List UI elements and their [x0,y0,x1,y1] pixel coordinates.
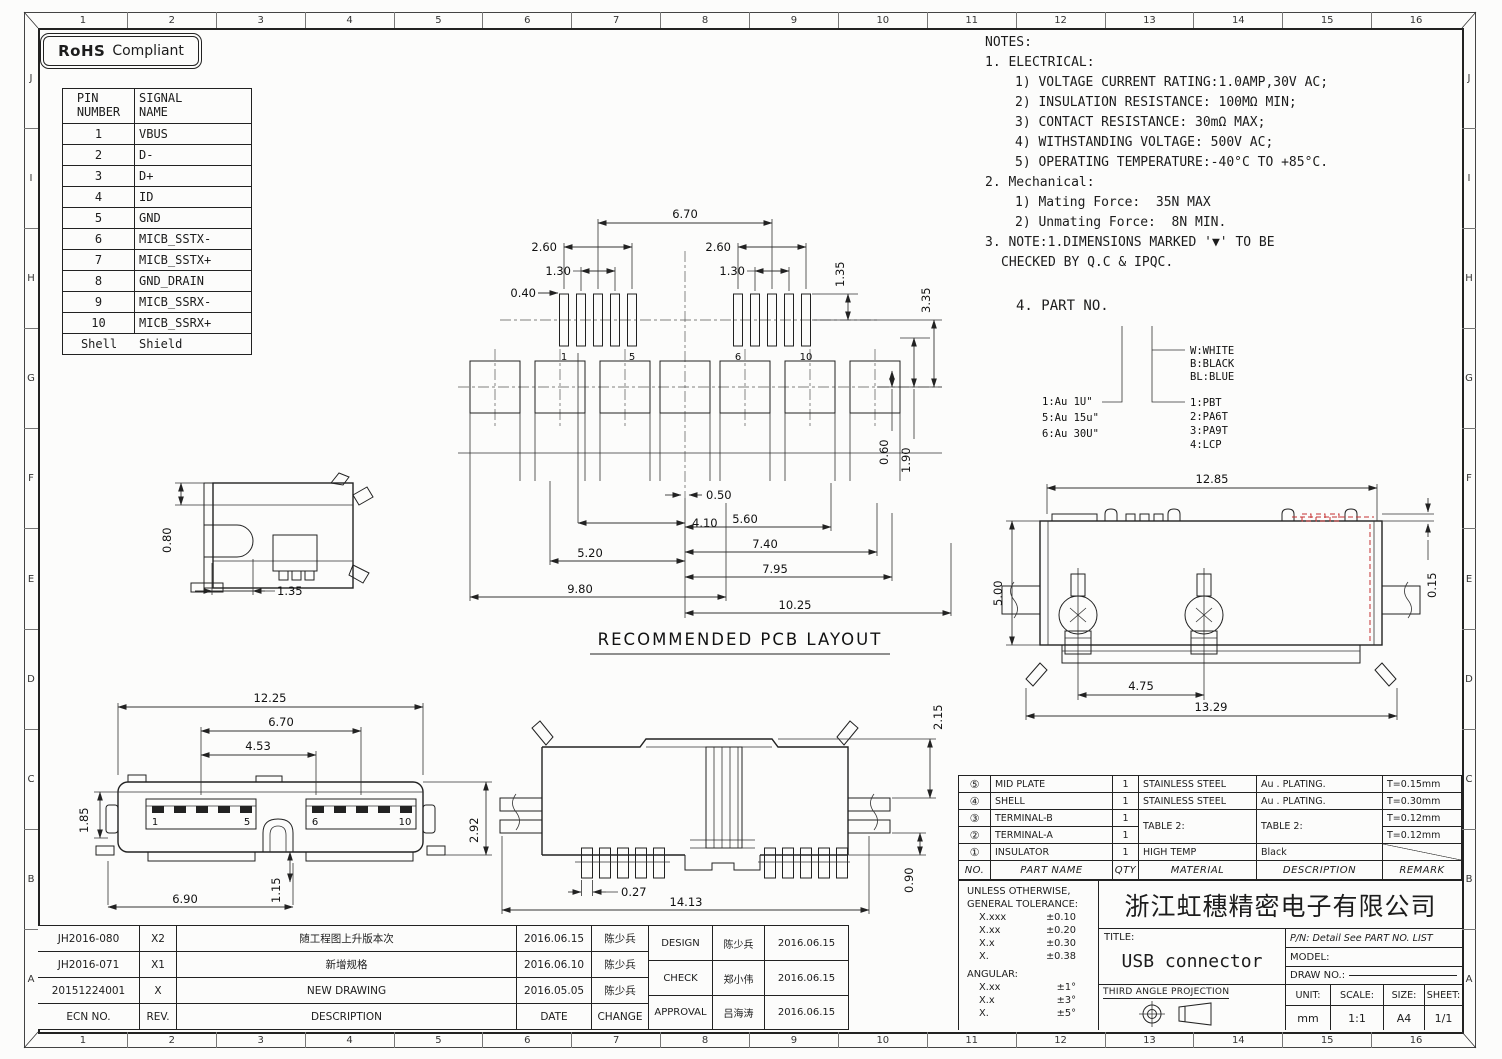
approval-date: 2016.06.15 [765,926,848,961]
plating-option: 1:Au 1U" [1042,396,1093,408]
rohs-bold-text: RoHS [58,42,105,60]
approval-role: DESIGN [649,926,713,961]
tol-val: ±0.20 [1046,924,1076,937]
bom-header: MATERIAL [1139,861,1257,879]
signal-cell: MICB_SSRX+ [135,313,251,334]
date-header: DATE [517,1004,592,1029]
bom-material: HIGH TEMP [1139,844,1257,861]
ruler-col: 12 [1017,12,1106,28]
ruler-row: F [24,429,38,529]
material-option: 3:PA9T [1190,425,1229,437]
material-option: 4:LCP [1190,439,1222,451]
dim-label: 0.80 [160,527,174,553]
tol-key: X. [979,950,989,963]
tolerance-line: UNLESS OTHERWISE, [967,885,1098,898]
tol-val: ±5° [1057,1007,1076,1020]
ruler-row: B [1462,830,1476,930]
contact-teeth [152,806,412,813]
bom-no: ⑤ [959,776,991,793]
note-line: 1) Mating Force: 35N MAX [985,193,1463,213]
dim-label: 6.70 [672,207,698,221]
bom-no: ① [959,844,991,861]
ruler-col: 13 [1106,12,1195,28]
pin-cell: 1 [63,124,135,145]
bom-header: NO. [959,861,991,879]
dim-label: 0.15 [1425,572,1439,598]
ruler-row: J [24,29,38,129]
approval-role: CHECK [649,961,713,996]
dim-label: 14.13 [670,895,703,909]
pin-cell: 8 [63,271,135,292]
ruler-col: 7 [572,1032,661,1048]
signal-cell: D- [135,145,251,166]
ruler-row: G [24,329,38,429]
notes-block: NOTES: 1. ELECTRICAL: 1) VOLTAGE CURRENT… [985,33,1463,273]
dim-label: 4.53 [245,739,271,753]
tol-val: ±0.10 [1046,911,1076,924]
approval-name: 郑小伟 [713,961,765,996]
bom-header: REMARK [1383,861,1461,879]
ruler-col: 1 [39,1032,128,1048]
ruler-col: 6 [483,12,572,28]
plating-option: 5:Au 15u" [1042,412,1099,424]
ruler-row: A [1462,930,1476,1029]
bom-header: DESCRIPTION [1257,861,1383,879]
drawing-title: USB connector [1099,951,1285,972]
bom-part-name: TERMINAL-A [991,827,1113,844]
ruler-col: 4 [306,1032,395,1048]
title-cell: TITLE: USB connector [1099,929,1286,984]
drawing-sheet: 1 2 3 4 5 6 7 8 9 10 11 12 13 14 15 16 1… [0,0,1502,1059]
approval-name: 陈少兵 [713,926,765,961]
dim-label: 6.90 [172,892,198,906]
bom-material-merged: TABLE 2: [1139,810,1257,844]
ruler-col: 3 [217,1032,306,1048]
dim-label: 1.15 [269,877,283,903]
front-view: 1 5 6 10 12.25 6.70 4.53 1.85 2.92 1.15 … [60,675,510,923]
ruler-row: B [24,830,38,930]
signal-cell: GND_DRAIN [135,271,251,292]
dim-label: 0.60 [877,439,891,465]
bom-qty: 1 [1113,844,1139,861]
pin-number: 6 [312,817,318,828]
ruler-top: 1 2 3 4 5 6 7 8 9 10 11 12 13 14 15 16 [39,12,1460,28]
bom-no: ③ [959,810,991,827]
tol-key: X.x [979,994,995,1007]
dim-label: 9.80 [567,582,593,596]
rev-header: REV. [140,1004,177,1029]
dim-label: 5.00 [991,580,1005,606]
dim-label: 5.60 [732,512,758,526]
ecn-no: 20151224001 [38,978,140,1004]
bom-qty: 1 [1113,776,1139,793]
pcb-layout-title: RECOMMENDED PCB LAYOUT [598,630,883,649]
signal-header: SIGNALNAME [135,89,251,124]
rev-code: X [140,978,177,1004]
red-reference-lines [1292,488,1378,643]
side-view-dimensions: 0.80 1.35 [160,483,303,598]
approval-date: 2016.06.15 [765,996,848,1029]
scale-value: 1:1 [1331,1006,1384,1030]
sheet-label: SHEET: [1425,985,1462,1006]
tol-val: ±0.30 [1046,937,1076,950]
ruler-col: 9 [750,12,839,28]
dim-label: 12.85 [1196,472,1229,486]
dim-label: 2.15 [931,704,945,730]
draw-no-label: DRAW NO.: [1290,970,1345,981]
signal-cell: MICB_SSTX+ [135,250,251,271]
part-number-note: P/N: Detail See PART NO. LIST [1286,929,1462,948]
tol-key: X.xxx [979,911,1006,924]
ruler-col: 14 [1194,1032,1283,1048]
dim-label: 0.27 [621,885,647,899]
bom-part-name: MID PLATE [991,776,1113,793]
ecn-no: JH2016-080 [38,926,140,952]
tol-key: X.xx [979,924,1000,937]
change-header: CHANGE [592,1004,648,1029]
signal-cell: D+ [135,166,251,187]
unit-label: UNIT: [1286,985,1331,1006]
ruler-row: H [24,229,38,329]
scale-label: SCALE: [1331,985,1384,1006]
title-block: 浙江虹穗精密电子有限公司 TITLE: USB connector P/N: D… [1098,880,1462,1030]
note-line: 3. NOTE:1.DIMENSIONS MARKED '▼' TO BE [985,233,1463,253]
ruler-col: 10 [839,12,928,28]
signal-cell: VBUS [135,124,251,145]
rear-view-dimensions: 2.15 0.90 0.27 14.13 [502,704,945,914]
part-no-tree: 1:Au 1U" 5:Au 15u" 6:Au 30U" W:WHITE B:B… [1040,322,1270,474]
bom-qty: 1 [1113,827,1139,844]
ruler-col: 10 [839,1032,928,1048]
ruler-col: 14 [1194,12,1283,28]
projection-symbols [1139,1001,1239,1027]
front-view-body [96,775,445,861]
side-view: 0.80 1.35 [135,443,395,628]
bom-description: Black [1257,844,1383,861]
shell-cell: Shell [63,334,135,354]
pin-number: 1 [152,817,158,828]
ruler-col: 15 [1283,12,1372,28]
dim-label: 1.85 [77,807,91,833]
tol-key: X.xx [979,981,1000,994]
pin-cell: 9 [63,292,135,313]
ruler-row: C [24,730,38,830]
note-line: 5) OPERATING TEMPERATURE:-40°C TO +85°C. [985,153,1463,173]
revision-table: JH2016-080 X2 随工程图上升版本次 2016.06.15 陈少兵 J… [38,925,649,1030]
rev-description: 随工程图上升版本次 [177,926,517,952]
ruler-col: 9 [750,1032,839,1048]
dim-label: 1.90 [899,447,913,473]
angular-label: ANGULAR: [967,968,1098,981]
ruler-col: 12 [1017,1032,1106,1048]
pin-cell: 2 [63,145,135,166]
approval-date: 2016.06.15 [765,961,848,996]
tol-key: X. [979,1007,989,1020]
ruler-col: 7 [572,12,661,28]
color-option: B:BLACK [1190,358,1235,370]
unit-value: mm [1286,1006,1331,1030]
bom-material: STAINLESS STEEL [1139,793,1257,810]
signal-cell: MICB_SSRX- [135,292,251,313]
note-line: 2) Unmating Force: 8N MIN. [985,213,1463,233]
dim-label: 0.90 [902,867,916,893]
pcb-mount-pads [458,361,942,481]
dim-label: 4.10 [692,516,718,530]
tol-val: ±0.38 [1046,950,1076,963]
bom-remark-slash [1383,844,1461,861]
dim-label: 10.25 [779,598,812,612]
top-view-body [1002,488,1420,700]
cone-symbol-icon [1179,1003,1211,1025]
sheet-value: 1/1 [1425,1006,1462,1030]
ruler-col: 11 [928,12,1017,28]
signal-cell: ID [135,187,251,208]
approval-name: 吕海涛 [713,996,765,1029]
bom-description-merged: TABLE 2: [1257,810,1383,844]
ruler-col: 4 [306,12,395,28]
ruler-col: 11 [928,1032,1017,1048]
rev-date: 2016.06.15 [517,926,592,952]
note-line: CHECKED BY Q.C & IPQC. [985,253,1463,273]
side-view-body [191,473,373,592]
ruler-col: 3 [217,12,306,28]
note-line: 2. Mechanical: [985,173,1463,193]
ruler-col: 16 [1372,1032,1460,1048]
ruler-row: I [1462,129,1476,229]
pin-number: 10 [399,817,412,828]
rev-change: 陈少兵 [592,978,648,1004]
size-label: SIZE: [1384,985,1425,1006]
tol-val: ±1° [1057,981,1076,994]
note-line: 4) WITHSTANDING VOLTAGE: 500V AC; [985,133,1463,153]
dim-label: 12.25 [254,691,287,705]
ruler-col: 5 [395,12,484,28]
pcb-layout-view: 1 5 6 10 6.70 2.60 1.30 0.40 2.60 [440,193,960,663]
dim-label: 1.30 [545,264,571,278]
dim-label: 1.30 [719,264,745,278]
rev-change: 陈少兵 [592,926,648,952]
material-option: 1:PBT [1190,397,1222,409]
rear-view-body [500,721,890,878]
bom-remark: T=0.15mm [1383,776,1461,793]
top-view-dimensions: 12.85 5.00 0.15 4.75 13.29 [991,472,1439,720]
ruler-row: I [24,129,38,229]
pin-cell: 5 [63,208,135,229]
rev-date: 2016.05.05 [517,978,592,1004]
ruler-row: A [24,930,38,1029]
bom-description: Au . PLATING. [1257,776,1383,793]
plating-option: 6:Au 30U" [1042,428,1099,440]
ruler-row: J [1462,29,1476,129]
projection-cell: THIRD ANGLE PROJECTION [1099,985,1286,1030]
dim-label: 1.35 [277,584,303,598]
ruler-bottom: 1 2 3 4 5 6 7 8 9 10 11 12 13 14 15 16 [39,1032,1460,1048]
pin-cell: 7 [63,250,135,271]
pin-signal-table: PINNUMBER SIGNALNAME 1VBUS 2D- 3D+ 4ID 5… [62,88,252,355]
bom-table: ⑤ MID PLATE 1 STAINLESS STEEL Au . PLATI… [958,775,1462,880]
bom-part-name: SHELL [991,793,1113,810]
dim-label: 2.60 [705,240,731,254]
color-option: BL:BLUE [1190,371,1234,383]
bom-remark: T=0.12mm [1383,827,1461,844]
front-view-dimensions: 12.25 6.70 4.53 1.85 2.92 1.15 6.90 [77,691,492,907]
note-line: NOTES: [985,33,1463,53]
note-line: 1. ELECTRICAL: [985,53,1463,73]
dim-label: 2.60 [531,240,557,254]
signal-cell: GND [135,208,251,229]
approval-role: APPROVAL [649,996,713,1029]
bom-header: PART NAME [991,861,1113,879]
description-header: DESCRIPTION [177,1004,517,1029]
note-line: 1) VOLTAGE CURRENT RATING:1.0AMP,30V AC; [985,73,1463,93]
dim-label: 1.35 [833,261,847,287]
dim-label: 13.29 [1195,700,1228,714]
note-line: 2) INSULATION RESISTANCE: 100MΩ MIN; [985,93,1463,113]
pin-number: 5 [244,817,250,828]
ruler-row: E [24,529,38,629]
ruler-col: 16 [1372,12,1460,28]
color-option: W:WHITE [1190,345,1234,357]
dim-label: 0.40 [510,286,536,300]
bom-part-name: TERMINAL-B [991,810,1113,827]
tol-key: X.x [979,937,995,950]
ruler-col: 6 [483,1032,572,1048]
company-name: 浙江虹穗精密电子有限公司 [1099,881,1462,929]
title-label: TITLE: [1104,932,1134,943]
rohs-compliant-text: Compliant [112,43,184,59]
part-no-heading: 4. PART NO. [1016,298,1109,314]
dim-label: 7.95 [762,562,788,576]
ruler-row: G [1462,329,1476,429]
dim-label: 4.75 [1128,679,1154,693]
note-line: 3) CONTACT RESISTANCE: 30mΩ MAX; [985,113,1463,133]
bom-header: QTY [1113,861,1139,879]
rohs-badge: RoHS Compliant [40,33,202,69]
ruler-col: 13 [1106,1032,1195,1048]
ruler-row: H [1462,229,1476,329]
approval-table: DESIGN 陈少兵 2016.06.15 CHECK 郑小伟 2016.06.… [649,925,849,1030]
material-option: 2:PA6T [1190,411,1229,423]
ruler-left: J I H G F E D C B A [24,29,38,1029]
ruler-col: 2 [128,12,217,28]
bom-remark: T=0.30mm [1383,793,1461,810]
bom-no: ④ [959,793,991,810]
ruler-col: 15 [1283,1032,1372,1048]
bom-remark: T=0.12mm [1383,810,1461,827]
signal-cell: MICB_SSTX- [135,229,251,250]
projection-label: THIRD ANGLE PROJECTION [1103,987,1229,999]
pin-cell: 3 [63,166,135,187]
rev-description: 新增规格 [177,952,517,978]
ruler-col: 8 [661,12,750,28]
ecn-no: JH2016-071 [38,952,140,978]
side-leads [500,794,890,833]
draw-no-line [1349,975,1457,976]
bom-material: STAINLESS STEEL [1139,776,1257,793]
rev-change: 陈少兵 [592,952,648,978]
size-value: A4 [1384,1006,1425,1030]
pin-cell: 6 [63,229,135,250]
pin-cell: 10 [63,313,135,334]
pin-cell: 4 [63,187,135,208]
ruler-col: 8 [661,1032,750,1048]
pin-header: PINNUMBER [63,89,135,124]
bom-description: Au . PLATING. [1257,793,1383,810]
dim-label: 2.92 [467,817,481,843]
tolerance-line: GENERAL TOLERANCE: [967,898,1098,911]
rev-code: X1 [140,952,177,978]
bom-part-name: INSULATOR [991,844,1113,861]
rev-code: X2 [140,926,177,952]
bom-no: ② [959,827,991,844]
dim-label: 7.40 [752,537,778,551]
ruler-col: 2 [128,1032,217,1048]
dim-label: 0.50 [706,488,732,502]
model-label: MODEL: [1286,948,1462,967]
bom-qty: 1 [1113,810,1139,827]
dim-label: 3.35 [919,287,933,313]
dim-label: 6.70 [268,715,294,729]
bom-qty: 1 [1113,793,1139,810]
ecn-header: ECN NO. [38,1004,140,1029]
ruler-col: 1 [39,12,128,28]
ruler-col: 5 [395,1032,484,1048]
dim-label: 5.20 [577,546,603,560]
draw-no-row: DRAW NO.: [1286,967,1462,984]
rev-description: NEW DRAWING [177,978,517,1004]
rev-date: 2016.06.10 [517,952,592,978]
tolerance-block: UNLESS OTHERWISE, GENERAL TOLERANCE: X.x… [958,880,1098,1030]
tol-val: ±3° [1057,994,1076,1007]
rear-view: 2.15 0.90 0.27 14.13 [490,650,960,920]
shield-cell: Shield [135,334,251,354]
top-view: 12.85 5.00 0.15 4.75 13.29 [990,468,1470,768]
ruler-row: D [24,630,38,730]
